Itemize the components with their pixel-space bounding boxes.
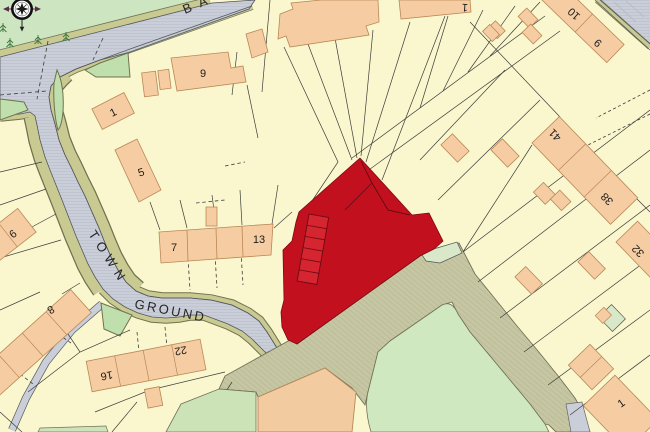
svg-text:1: 1 [461, 1, 468, 13]
svg-text:9: 9 [200, 68, 206, 80]
svg-text:7: 7 [171, 242, 177, 254]
svg-text:13: 13 [253, 234, 265, 246]
svg-text:22: 22 [174, 343, 188, 357]
svg-text:16: 16 [100, 368, 114, 382]
